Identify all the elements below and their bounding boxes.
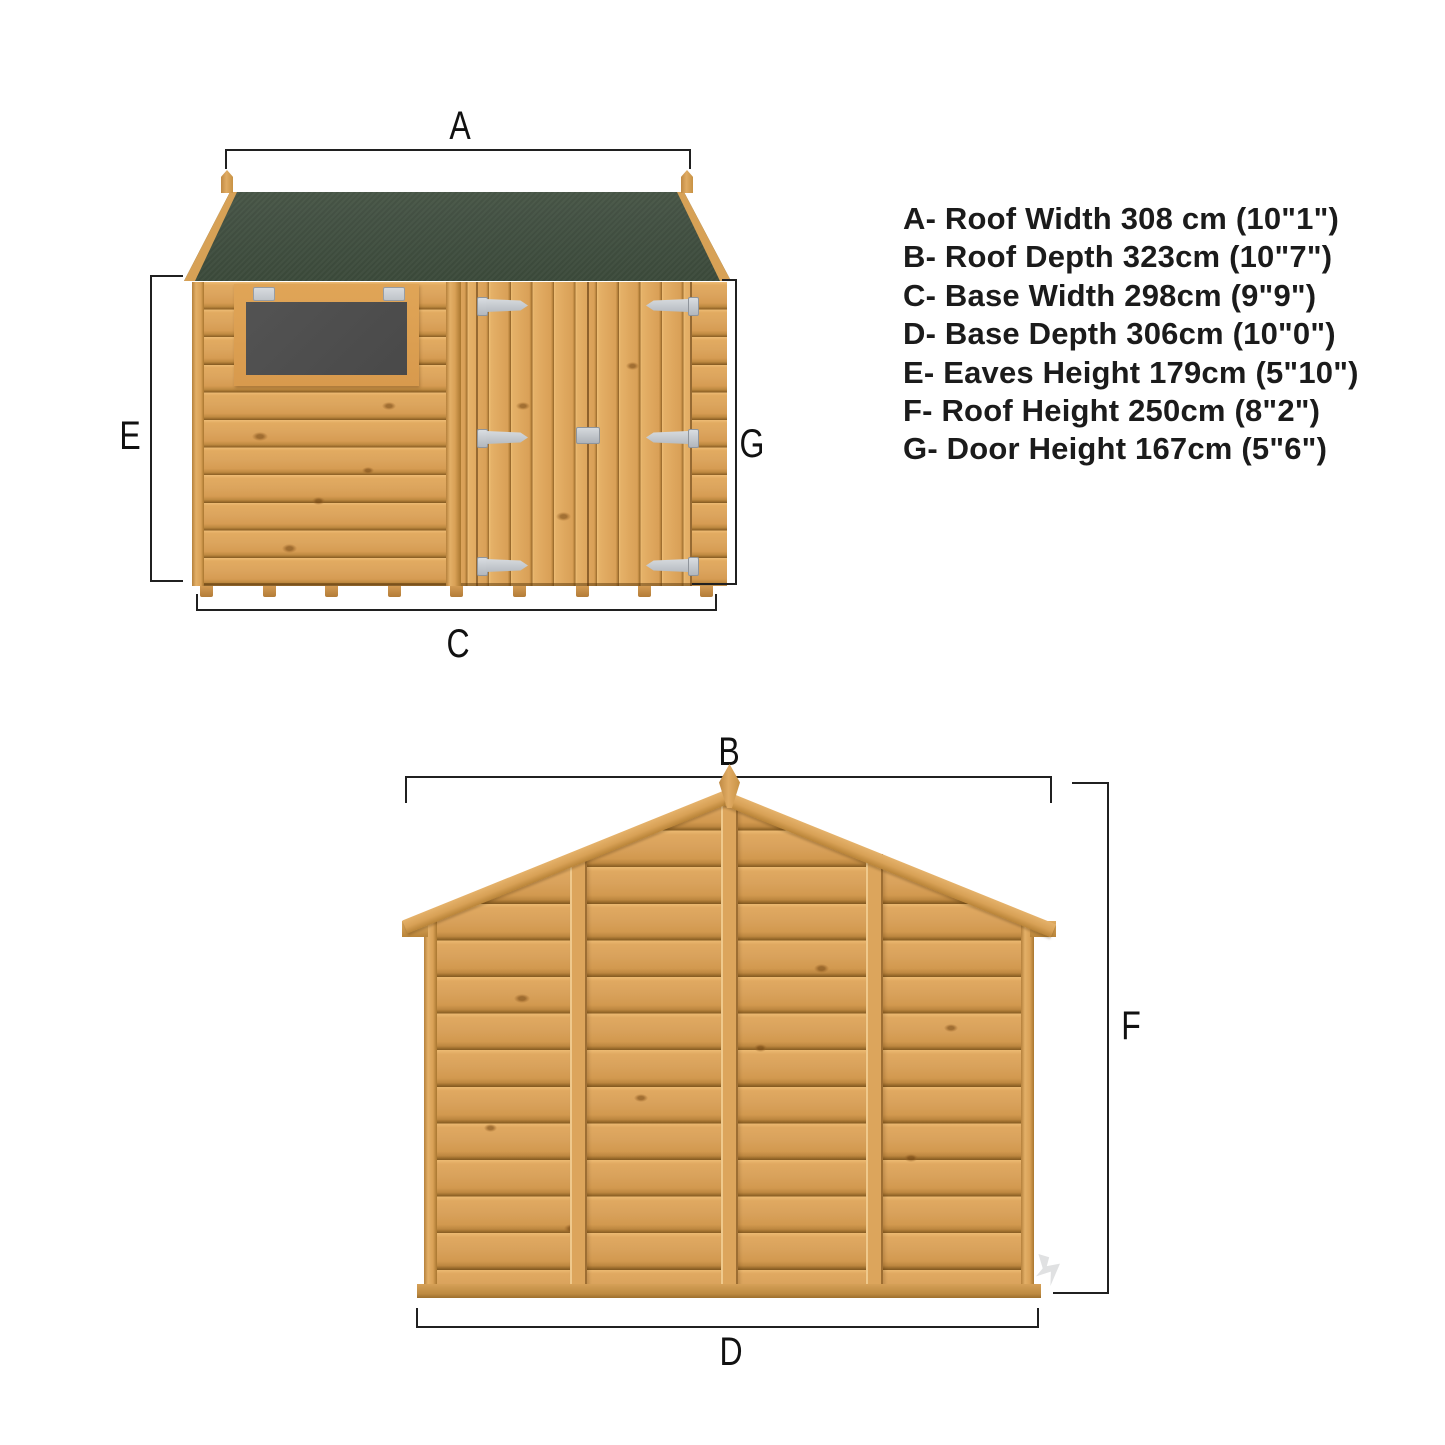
gable-base-rail bbox=[417, 1284, 1041, 1298]
wood-knot bbox=[516, 402, 530, 410]
hinge-icon bbox=[688, 297, 699, 316]
legend-line-e: E- Eaves Height 179cm (5"10") bbox=[903, 354, 1359, 392]
legend-line-d: D- Base Depth 306cm (10"0") bbox=[903, 315, 1359, 353]
window-bracket-right bbox=[383, 287, 405, 301]
gable-batten-left bbox=[570, 856, 587, 1284]
dim-tick bbox=[722, 279, 736, 281]
wood-knot bbox=[814, 964, 829, 973]
gable-corner-trim-right bbox=[1021, 920, 1034, 1297]
front-corner-trim-left bbox=[192, 282, 204, 586]
dim-tick bbox=[1037, 1308, 1039, 1328]
legend-line-b: B- Roof Depth 323cm (10"7") bbox=[903, 238, 1359, 276]
wood-knot bbox=[634, 1094, 648, 1102]
dim-label-base-width: C bbox=[434, 624, 482, 664]
dim-tick bbox=[225, 149, 227, 169]
hinge-icon bbox=[688, 557, 699, 576]
wood-knot bbox=[312, 497, 325, 505]
window-pane bbox=[246, 302, 407, 375]
dim-line-a bbox=[226, 149, 691, 151]
dim-label-roof-width: A bbox=[436, 106, 484, 146]
watermark-mark bbox=[1036, 1254, 1060, 1286]
dim-tick bbox=[1050, 776, 1052, 803]
wood-knot bbox=[484, 1124, 497, 1132]
dim-label-base-depth: D bbox=[707, 1332, 755, 1372]
legend-line-f: F- Roof Height 250cm (8"2") bbox=[903, 392, 1359, 430]
dim-tick bbox=[1053, 1292, 1108, 1294]
wood-knot bbox=[626, 362, 639, 370]
dim-line-g bbox=[735, 279, 737, 585]
gable-batten-center bbox=[721, 806, 738, 1284]
dim-line-f bbox=[1107, 782, 1109, 1294]
shed-dimension-diagram: A bbox=[0, 0, 1445, 1445]
dim-tick bbox=[692, 583, 736, 585]
wood-knot bbox=[944, 1024, 958, 1032]
shed-foot bbox=[576, 586, 589, 597]
wood-knot bbox=[252, 432, 268, 441]
side-view: B F bbox=[0, 700, 1200, 1420]
legend-line-g: G- Door Height 167cm (5"6") bbox=[903, 430, 1359, 468]
front-view: A bbox=[0, 0, 780, 680]
wood-knot bbox=[556, 512, 571, 521]
wood-knot bbox=[362, 467, 374, 474]
roof-finial-right bbox=[681, 170, 693, 193]
dim-tick bbox=[416, 1308, 418, 1328]
dim-tick bbox=[715, 594, 717, 611]
wood-knot bbox=[754, 1044, 767, 1052]
door-latch-icon bbox=[576, 427, 600, 444]
roof-finial-left bbox=[221, 170, 233, 193]
hinge-icon bbox=[688, 429, 699, 448]
dim-tick bbox=[1072, 782, 1108, 784]
dim-tick bbox=[196, 594, 198, 611]
wood-knot bbox=[382, 402, 396, 410]
dim-tick bbox=[689, 149, 691, 169]
gable-batten-right bbox=[866, 854, 883, 1284]
measurement-legend: A- Roof Width 308 cm (10"1") B- Roof Dep… bbox=[903, 200, 1359, 469]
shed-foot bbox=[200, 586, 213, 597]
window-bracket-left bbox=[253, 287, 275, 301]
shed-foot bbox=[638, 586, 651, 597]
dim-tick bbox=[150, 275, 183, 277]
dim-line-d bbox=[417, 1326, 1039, 1328]
shed-foot bbox=[263, 586, 276, 597]
dim-line-c bbox=[197, 609, 717, 611]
dim-tick bbox=[150, 580, 183, 582]
shed-foot bbox=[700, 586, 713, 597]
gable-corner-trim-left bbox=[424, 920, 437, 1297]
wood-knot bbox=[514, 994, 530, 1003]
legend-line-a: A- Roof Width 308 cm (10"1") bbox=[903, 200, 1359, 238]
wood-knot bbox=[282, 544, 297, 553]
dim-tick bbox=[405, 776, 407, 803]
legend-line-c: C- Base Width 298cm (9"9") bbox=[903, 277, 1359, 315]
dim-line-e bbox=[150, 275, 152, 582]
shed-foot bbox=[450, 586, 463, 597]
shed-foot bbox=[325, 586, 338, 597]
window bbox=[234, 284, 419, 386]
front-roof-felt bbox=[184, 172, 731, 282]
shed-foot bbox=[513, 586, 526, 597]
wood-knot bbox=[904, 1154, 918, 1162]
shed-foot bbox=[388, 586, 401, 597]
dim-label-roof-height: F bbox=[1107, 1006, 1155, 1046]
door-frame-left bbox=[446, 282, 461, 586]
dim-label-eaves-height: E bbox=[106, 416, 154, 456]
